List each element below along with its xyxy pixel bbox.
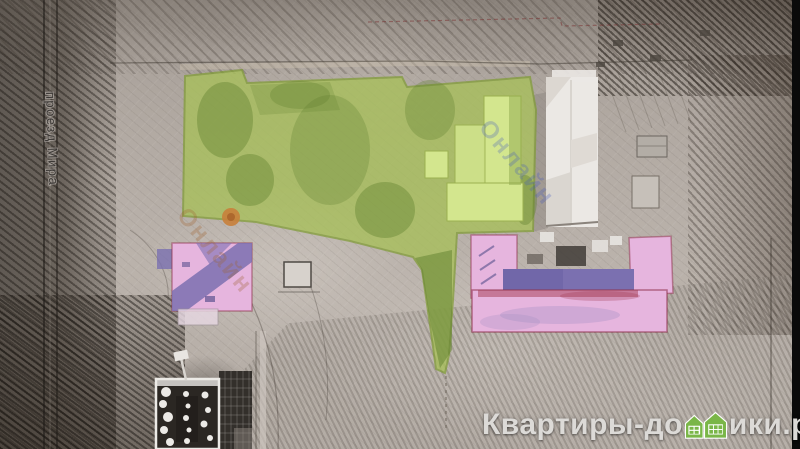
orange-marker-core bbox=[227, 213, 235, 221]
street-label: проезд Мира bbox=[43, 92, 61, 187]
watermark-text-suffix: ики.рф bbox=[729, 405, 800, 445]
cadastral-dashed-line bbox=[368, 18, 660, 26]
small-white-shed bbox=[284, 262, 311, 287]
roof-antenna bbox=[181, 358, 186, 380]
photo-overlay-drawing: проезд Мира Онлайн Онлайн bbox=[0, 0, 800, 449]
pink-building-right bbox=[471, 232, 673, 332]
right-edge-bar bbox=[792, 0, 800, 449]
brand-watermark: Квартиры-до ики.рф bbox=[482, 405, 800, 445]
highrise-building bbox=[156, 350, 252, 449]
watermark-text-prefix: Квартиры-до bbox=[482, 405, 683, 445]
shed bbox=[632, 176, 659, 208]
watermark-houses-logo bbox=[684, 408, 728, 442]
aerial-photo: проезд Мира Онлайн Онлайн Квартиры-до bbox=[0, 0, 800, 449]
pink-right-east-wing bbox=[629, 236, 673, 294]
parking-lines bbox=[604, 62, 691, 132]
courtyard-structures bbox=[527, 232, 622, 266]
